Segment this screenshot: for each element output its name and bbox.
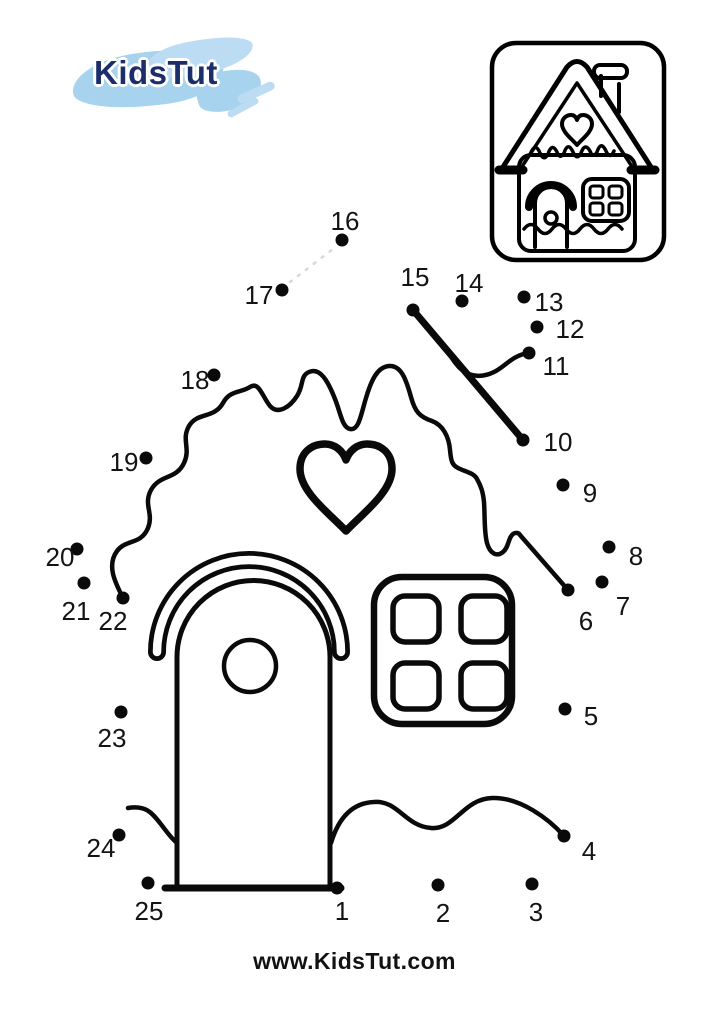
dot-21[interactable] [78,577,91,590]
dot-label-16: 16 [331,206,360,236]
dot-25[interactable] [142,877,155,890]
dot-label-6: 6 [579,606,593,636]
dot-label-2: 2 [436,898,450,928]
dot-23[interactable] [115,706,128,719]
dot-label-15: 15 [401,262,430,292]
dot-7[interactable] [596,576,609,589]
dot-label-12: 12 [556,314,585,344]
door-body [177,581,330,888]
dot-11[interactable] [523,347,536,360]
dot-label-20: 20 [46,542,75,572]
snow-wave-right-to-4 [331,798,564,843]
dot-3[interactable] [526,878,539,891]
dot-4[interactable] [558,830,571,843]
snow-wave-left [128,807,176,842]
dot-label-25: 25 [135,896,164,926]
dot-label-23: 23 [98,723,127,753]
dot-label-5: 5 [584,701,598,731]
dot-label-10: 10 [544,427,573,457]
dot-15[interactable] [407,304,420,317]
dot-label-19: 19 [110,447,139,477]
dot-label-22: 22 [99,606,128,636]
dot-label-17: 17 [245,280,274,310]
dot-22[interactable] [117,592,130,605]
dot-to-dot-puzzle: 1234567891011121314151617181920212223242… [0,0,709,1024]
window-pane [461,596,507,642]
dot-label-11: 11 [543,351,570,381]
dot-label-14: 14 [455,268,484,298]
dot-label-1: 1 [335,896,349,926]
dot-17[interactable] [276,284,289,297]
roof-icing-outline [112,366,568,598]
dot-13[interactable] [518,291,531,304]
dot-label-18: 18 [181,365,210,395]
dot-label-13: 13 [535,287,564,317]
dot-10[interactable] [517,434,530,447]
house-predrawn-lines [112,249,568,888]
dashed-guide-16-17 [290,249,333,282]
dot-label-8: 8 [629,541,643,571]
dot-6[interactable] [562,584,575,597]
dot-5[interactable] [559,703,572,716]
window-pane [461,663,507,709]
dot-8[interactable] [603,541,616,554]
website-footer: www.KidsTut.com [0,948,709,975]
window-pane [393,663,439,709]
door-knob [224,640,276,692]
window-pane [393,596,439,642]
dot-2[interactable] [432,879,445,892]
dot-label-9: 9 [583,478,597,508]
dot-9[interactable] [557,479,570,492]
dot-label-24: 24 [87,833,116,863]
heart-outline [300,444,392,531]
dot-label-4: 4 [582,836,596,866]
dot-label-7: 7 [616,591,630,621]
dot-1[interactable] [331,882,344,895]
dot-label-3: 3 [529,897,543,927]
worksheet-page: KidsTut [0,0,709,1024]
dot-19[interactable] [140,452,153,465]
dot-label-21: 21 [62,596,91,626]
dot-12[interactable] [531,321,544,334]
